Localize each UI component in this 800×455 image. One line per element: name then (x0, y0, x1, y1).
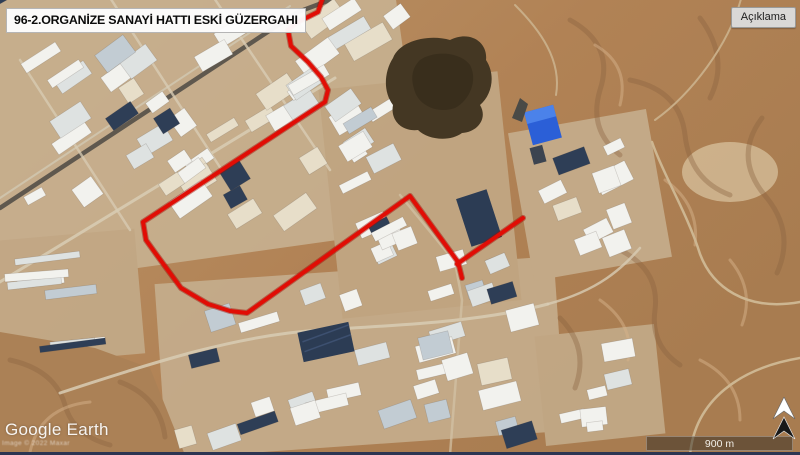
imagery-copyright: Image © 2022 Maxar (2, 440, 70, 447)
satellite-map[interactable] (0, 0, 800, 455)
google-earth-watermark: Google Earth (5, 420, 109, 440)
google-earth-screenshot: 96-2.ORGANİZE SANAYİ HATTI ESKİ GÜZERGAH… (0, 0, 800, 455)
vegetation-patch (386, 36, 492, 138)
north-arrow-icon (771, 397, 797, 445)
scale-label: 900 m (705, 438, 734, 450)
legend-button[interactable]: Açıklama (731, 7, 796, 28)
map-title: 96-2.ORGANİZE SANAYİ HATTI ESKİ GÜZERGAH… (6, 8, 306, 33)
